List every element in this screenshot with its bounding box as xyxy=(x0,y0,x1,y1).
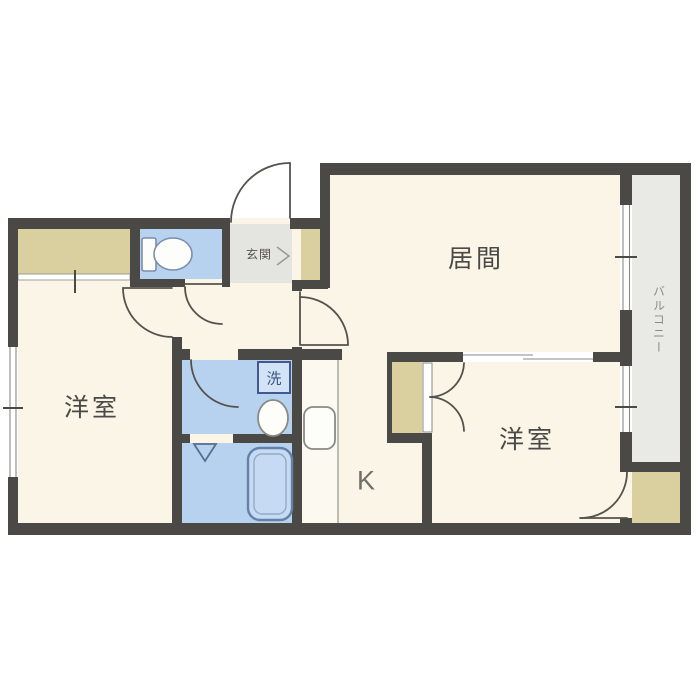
entrance-label: 玄関 xyxy=(246,246,272,263)
kitchen-sink-icon xyxy=(304,407,335,449)
bedroom-left-label: 洋室 xyxy=(64,388,120,424)
bedroom-right-label: 洋室 xyxy=(499,420,555,456)
living-room-label: 居間 xyxy=(448,239,504,275)
floor-plan-drawing xyxy=(0,0,700,700)
closet-bottom-right xyxy=(632,472,680,523)
laundry-label: 洗 xyxy=(266,368,281,389)
closet-bedroom-right xyxy=(392,362,432,433)
balcony-label: バルコニー xyxy=(651,285,668,355)
shoe-cabinet xyxy=(301,229,320,280)
floor-plan: 居間 洋室 洋室 玄関 K 洗 バルコニー xyxy=(0,0,700,700)
sliding-door-living-bedroom xyxy=(463,352,593,362)
washbasin-icon xyxy=(258,400,288,436)
kitchen-label: K xyxy=(357,466,375,497)
toilet-icon xyxy=(142,238,192,271)
bathtub-icon xyxy=(248,448,292,520)
